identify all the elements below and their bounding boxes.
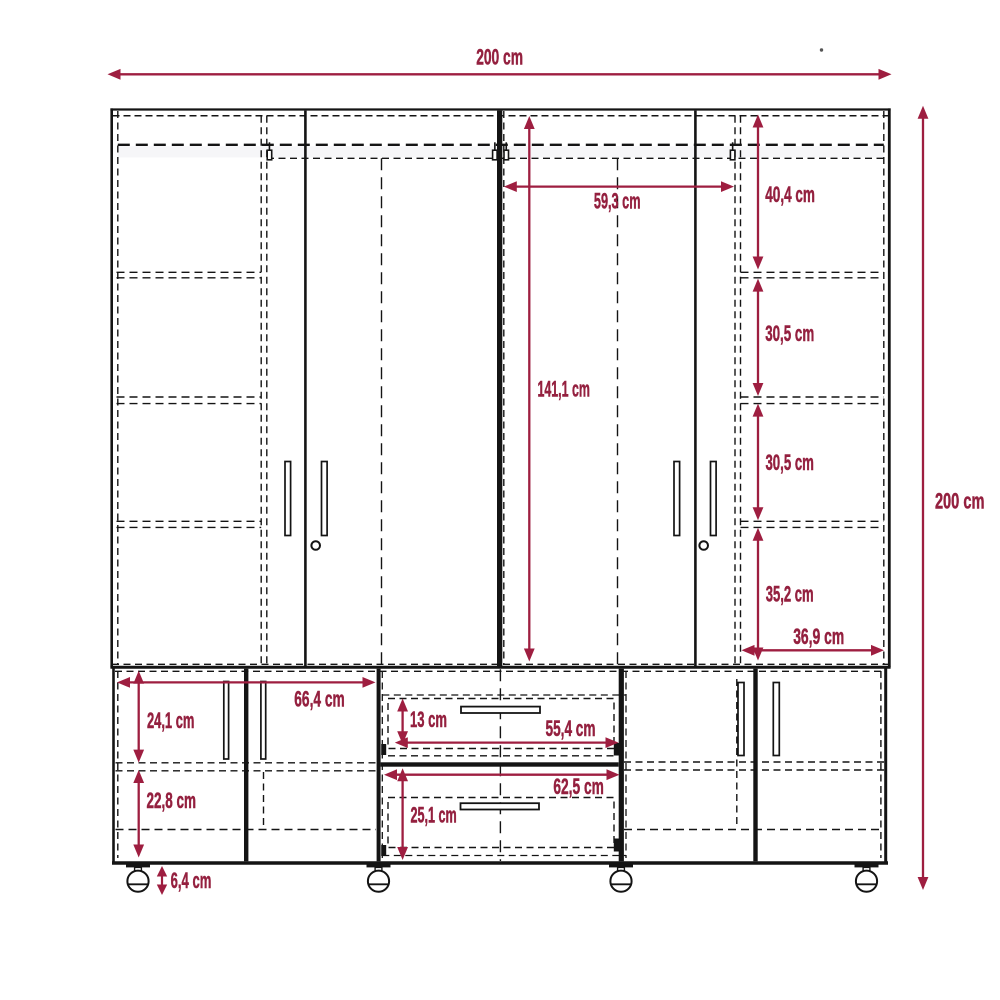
svg-text:30,5 cm: 30,5 cm bbox=[765, 450, 814, 475]
svg-text:200 cm: 200 cm bbox=[476, 44, 523, 69]
svg-text:40,4 cm: 40,4 cm bbox=[765, 182, 815, 207]
svg-text:22,8 cm: 22,8 cm bbox=[146, 788, 196, 813]
svg-text:62,5 cm: 62,5 cm bbox=[553, 774, 603, 799]
svg-text:141,1 cm: 141,1 cm bbox=[537, 377, 590, 402]
svg-text:30,5 cm: 30,5 cm bbox=[765, 321, 814, 346]
svg-text:55,4 cm: 55,4 cm bbox=[546, 716, 596, 741]
svg-text:36,9 cm: 36,9 cm bbox=[793, 624, 844, 649]
svg-text:24,1 cm: 24,1 cm bbox=[147, 708, 195, 733]
svg-text:200 cm: 200 cm bbox=[935, 489, 985, 514]
svg-text:13 cm: 13 cm bbox=[410, 707, 447, 732]
svg-text:6,4 cm: 6,4 cm bbox=[171, 868, 212, 893]
svg-text:35,2 cm: 35,2 cm bbox=[766, 582, 814, 607]
svg-text:25,1 cm: 25,1 cm bbox=[410, 803, 456, 828]
svg-text:66,4 cm: 66,4 cm bbox=[294, 687, 344, 712]
svg-text:59,3 cm: 59,3 cm bbox=[594, 189, 641, 214]
